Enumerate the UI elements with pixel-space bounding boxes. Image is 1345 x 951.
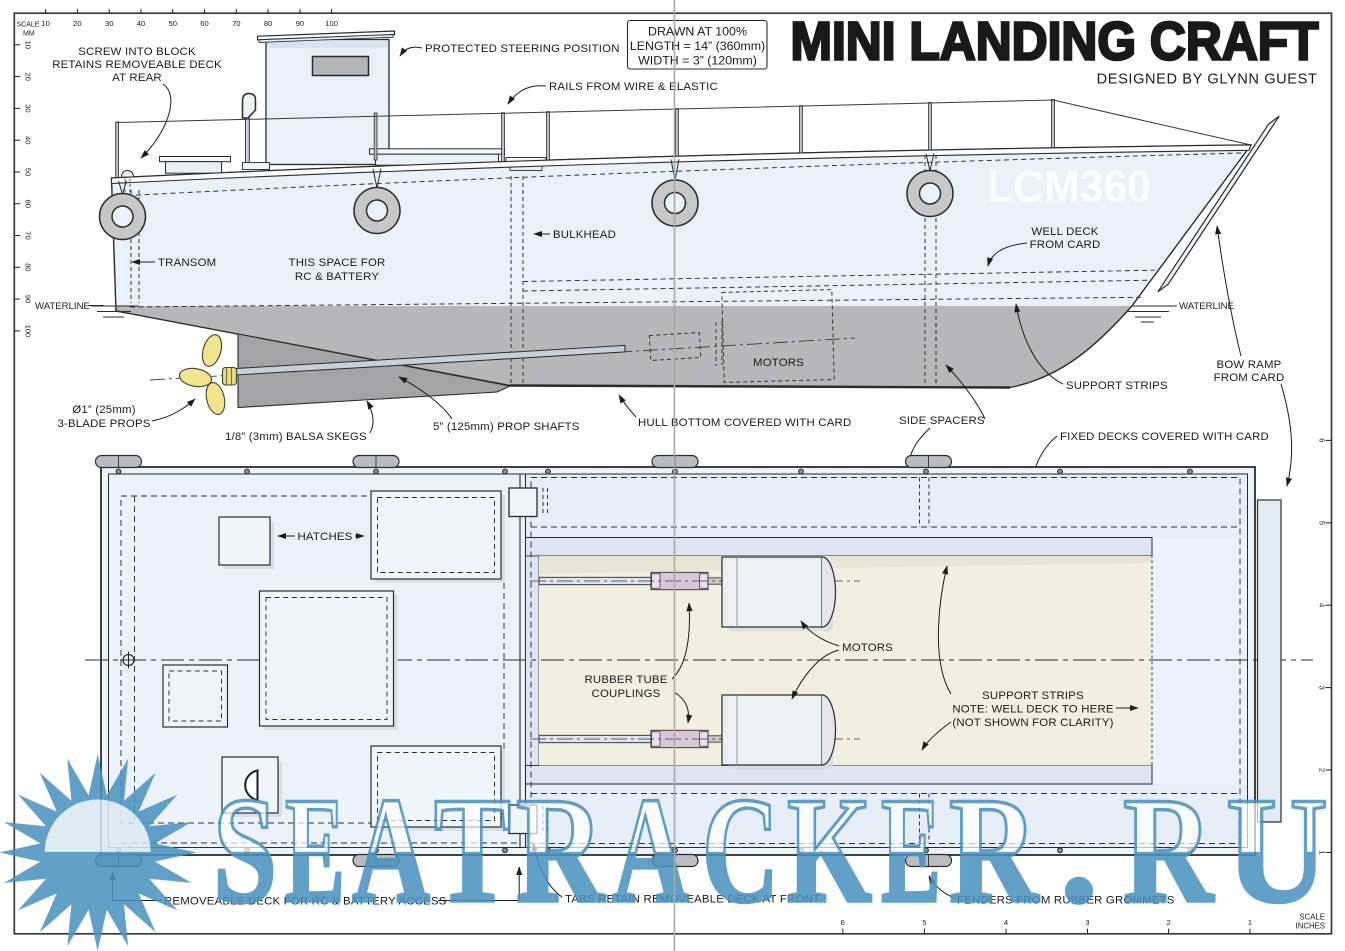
svg-text:R: R: [1123, 766, 1215, 934]
svg-text:R: R: [949, 766, 1040, 934]
svg-text:30: 30: [24, 104, 33, 112]
svg-text:4: 4: [1318, 603, 1327, 607]
svg-text:MM: MM: [23, 31, 35, 38]
svg-text:90: 90: [24, 295, 33, 303]
svg-text:COUPLINGS: COUPLINGS: [592, 688, 661, 700]
svg-text:K: K: [787, 766, 872, 934]
svg-text:WATERLINE: WATERLINE: [1179, 301, 1234, 312]
svg-text:70: 70: [24, 231, 33, 239]
svg-text:50: 50: [24, 168, 33, 176]
svg-text:70: 70: [232, 19, 240, 28]
svg-text:MOTORS: MOTORS: [753, 357, 804, 369]
svg-text:NOTE: WELL DECK TO HERE: NOTE: WELL DECK TO HERE: [952, 704, 1114, 716]
svg-text:60: 60: [24, 199, 33, 207]
svg-text:DESIGNED BY GLYNN GUEST: DESIGNED BY GLYNN GUEST: [1097, 72, 1318, 88]
svg-text:100: 100: [24, 325, 33, 338]
svg-text:LCM360: LCM360: [987, 161, 1151, 212]
svg-text:PROTECTED STEERING POSITION: PROTECTED STEERING POSITION: [425, 43, 620, 55]
svg-text:U: U: [1226, 766, 1328, 934]
svg-text:FROM CARD: FROM CARD: [1030, 239, 1101, 251]
svg-text:LENGTH = 14” (360mm): LENGTH = 14” (360mm): [630, 39, 765, 53]
svg-text:S: S: [213, 766, 277, 934]
svg-text:40: 40: [24, 136, 33, 144]
svg-text:100: 100: [325, 19, 338, 28]
svg-text:E: E: [881, 766, 941, 934]
svg-text:50: 50: [168, 19, 176, 28]
svg-text:SCALE: SCALE: [17, 22, 40, 29]
svg-text:DRAWN AT 100%: DRAWN AT 100%: [648, 25, 747, 39]
svg-text:5: 5: [1318, 521, 1327, 525]
svg-text:(NOT SHOWN FOR CLARITY): (NOT SHOWN FOR CLARITY): [952, 717, 1113, 729]
svg-text:RC & BATTERY: RC & BATTERY: [295, 271, 379, 283]
svg-text:E: E: [285, 766, 345, 934]
svg-text:SIDE SPACERS: SIDE SPACERS: [899, 415, 985, 427]
svg-text:WIDTH = 3” (120mm): WIDTH = 3” (120mm): [638, 54, 757, 68]
svg-text:TRANSOM: TRANSOM: [158, 257, 216, 269]
svg-text:THIS SPACE FOR: THIS SPACE FOR: [289, 257, 386, 269]
svg-text:WELL DECK: WELL DECK: [1031, 226, 1098, 238]
svg-text:T: T: [434, 766, 511, 934]
svg-text:5” (125mm) PROP SHAFTS: 5” (125mm) PROP SHAFTS: [433, 421, 580, 433]
svg-text:20: 20: [24, 72, 33, 80]
svg-text:HATCHES: HATCHES: [298, 531, 353, 543]
svg-text:BULKHEAD: BULKHEAD: [553, 229, 616, 241]
svg-text:10: 10: [41, 19, 49, 28]
svg-text:10: 10: [24, 41, 33, 49]
svg-text:SUPPORT STRIPS: SUPPORT STRIPS: [1066, 380, 1168, 392]
svg-text:60: 60: [200, 19, 208, 28]
svg-text:3-BLADE PROPS: 3-BLADE PROPS: [57, 418, 150, 430]
svg-text:R: R: [516, 766, 606, 934]
svg-text:1/8” (3mm) BALSA SKEGS: 1/8” (3mm) BALSA SKEGS: [225, 431, 367, 443]
svg-text:A: A: [612, 766, 689, 934]
svg-text:A: A: [352, 766, 430, 934]
svg-text:FROM CARD: FROM CARD: [1214, 372, 1285, 384]
svg-text:RETAINS REMOVEABLE DECK: RETAINS REMOVEABLE DECK: [52, 59, 222, 71]
svg-text:80: 80: [24, 263, 33, 271]
svg-text:SCREW INTO BLOCK: SCREW INTO BLOCK: [78, 46, 196, 58]
svg-text:.: .: [1060, 766, 1098, 934]
svg-text:WATERLINE: WATERLINE: [35, 301, 90, 312]
svg-text:3: 3: [1318, 685, 1327, 689]
svg-text:6: 6: [1318, 438, 1327, 442]
svg-text:HULL BOTTOM COVERED WITH CARD: HULL BOTTOM COVERED WITH CARD: [638, 417, 851, 429]
svg-text:AT REAR: AT REAR: [112, 72, 162, 84]
svg-text:20: 20: [73, 19, 81, 28]
svg-text:90: 90: [296, 19, 304, 28]
svg-text:FIXED DECKS COVERED WITH CARD: FIXED DECKS COVERED WITH CARD: [1060, 431, 1269, 443]
svg-text:RUBBER TUBE: RUBBER TUBE: [584, 674, 667, 686]
svg-text:MINI LANDING CRAFT: MINI LANDING CRAFT: [791, 12, 1319, 72]
svg-text:C: C: [702, 766, 779, 934]
svg-text:RAILS FROM WIRE & ELASTIC: RAILS FROM WIRE & ELASTIC: [549, 81, 718, 93]
svg-text:30: 30: [105, 19, 113, 28]
svg-text:BOW RAMP: BOW RAMP: [1217, 359, 1282, 371]
svg-text:Ø1” (25mm): Ø1” (25mm): [72, 404, 135, 416]
svg-text:MOTORS: MOTORS: [842, 642, 893, 654]
svg-text:SUPPORT STRIPS: SUPPORT STRIPS: [982, 690, 1084, 702]
svg-text:80: 80: [264, 19, 272, 28]
svg-text:40: 40: [137, 19, 145, 28]
